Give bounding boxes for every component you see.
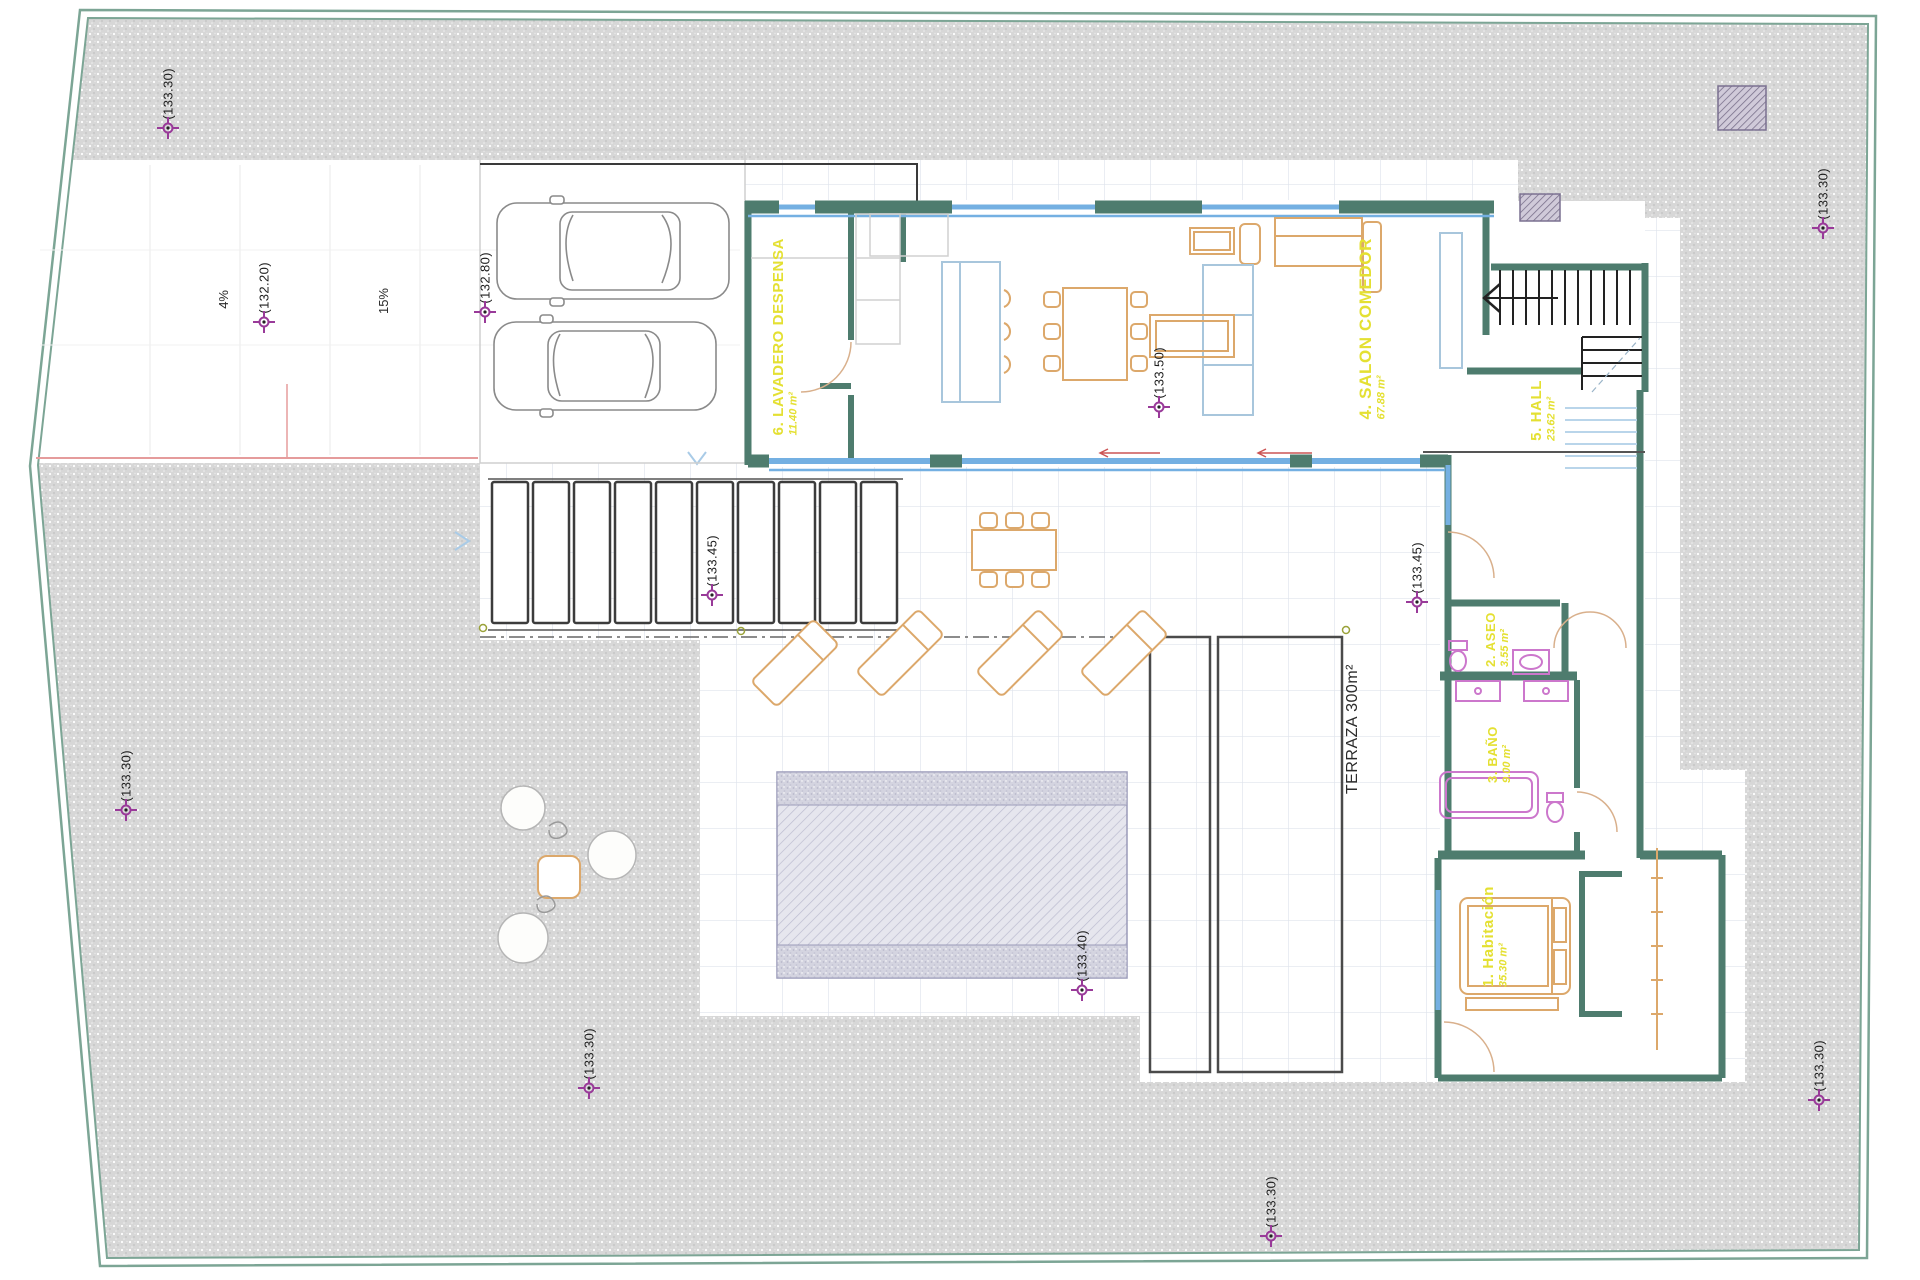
terraza-annotation: TERRAZA 300m² — [1344, 664, 1362, 794]
survey-point-icon — [253, 311, 275, 333]
elevation-value: (133.30) — [1812, 1040, 1827, 1092]
elevation-value: (133.50) — [1152, 347, 1167, 399]
survey-point-icon — [1812, 217, 1834, 239]
elevation-marker-ramp: (132.20) — [253, 311, 275, 333]
elevation-marker-salon: (133.50) — [1148, 396, 1170, 418]
room-label-salon: 4. SALON COMEDOR 67.88 m² — [1356, 238, 1388, 420]
survey-point-icon — [701, 584, 723, 606]
elevation-value: (133.45) — [705, 535, 720, 587]
slope-label-4: 4% — [216, 290, 231, 309]
elevation-value: (132.20) — [257, 262, 272, 314]
elevation-marker-deck: (133.45) — [701, 584, 723, 606]
survey-point-icon — [157, 117, 179, 139]
room-label-lavadero: 6. LAVADERO DESPENSA 11.40 m² — [770, 238, 800, 435]
room-name: 1. Habitación — [1480, 886, 1497, 987]
room-area: 67.88 m² — [1376, 238, 1389, 420]
elevation-marker-left: (133.30) — [115, 799, 137, 821]
slope-label-15: 15% — [376, 288, 391, 314]
room-area: 11.40 m² — [787, 238, 800, 435]
room-label-hall: 5. HALL 23.62 m² — [1528, 380, 1558, 441]
elevation-value: (133.30) — [1816, 168, 1831, 220]
room-area: 3.55 m² — [1499, 612, 1512, 667]
room-area: 35.30 m² — [1497, 886, 1510, 987]
elevation-marker-bath-terrace: (133.45) — [1406, 591, 1428, 613]
room-name: 2. ASEO — [1484, 612, 1499, 667]
room-label-aseo: 2. ASEO 3.55 m² — [1484, 612, 1512, 667]
elevation-marker-bottom-center: (133.30) — [1260, 1225, 1282, 1247]
floorplan-drawing — [0, 0, 1920, 1280]
elevation-marker-top-right: (133.30) — [1812, 217, 1834, 239]
elevation-value: (133.40) — [1075, 930, 1090, 982]
room-name: 3. BAÑO — [1486, 726, 1501, 783]
room-name: 4. SALON COMEDOR — [1356, 238, 1376, 420]
room-label-habitacion: 1. Habitación 35.30 m² — [1480, 886, 1510, 987]
elevation-marker-bottom-right: (133.30) — [1808, 1089, 1830, 1111]
survey-point-icon — [578, 1077, 600, 1099]
elevation-value: (133.30) — [161, 68, 176, 120]
room-name: 5. HALL — [1528, 380, 1545, 441]
room-name: 6. LAVADERO DESPENSA — [770, 238, 787, 435]
survey-point-icon — [1071, 979, 1093, 1001]
elevation-marker-garage: (132.80) — [474, 301, 496, 323]
survey-point-icon — [474, 301, 496, 323]
elevation-value: (133.30) — [1264, 1176, 1279, 1228]
elevation-value: (133.45) — [1410, 542, 1425, 594]
room-area: 23.62 m² — [1545, 380, 1558, 441]
room-area: 9.00 m² — [1501, 726, 1514, 783]
elevation-marker-bottom-left: (133.30) — [578, 1077, 600, 1099]
room-label-bano: 3. BAÑO 9.00 m² — [1486, 726, 1514, 783]
elevation-marker-pool: (133.40) — [1071, 979, 1093, 1001]
survey-point-icon — [1148, 396, 1170, 418]
elevation-value: (133.30) — [582, 1028, 597, 1080]
survey-point-icon — [1260, 1225, 1282, 1247]
elevation-marker-top-left: (133.30) — [157, 117, 179, 139]
floor-plan-page: (133.30) (132.20) (132.80) (133.50) (133… — [0, 0, 1920, 1280]
survey-point-icon — [1808, 1089, 1830, 1111]
survey-point-icon — [1406, 591, 1428, 613]
elevation-value: (132.80) — [478, 252, 493, 304]
survey-point-icon — [115, 799, 137, 821]
elevation-value: (133.30) — [119, 750, 134, 802]
